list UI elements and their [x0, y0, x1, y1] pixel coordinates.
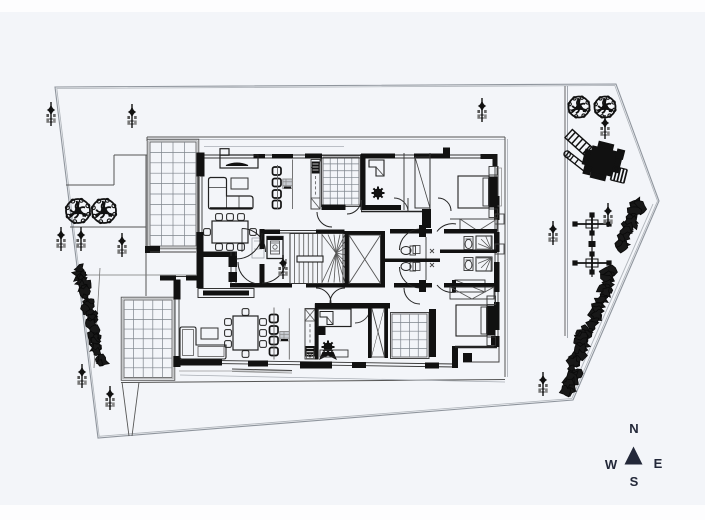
svg-text:S: S — [630, 474, 639, 489]
svg-text:N: N — [629, 421, 638, 436]
svg-text:W: W — [605, 457, 618, 472]
svg-text:E: E — [654, 456, 663, 471]
